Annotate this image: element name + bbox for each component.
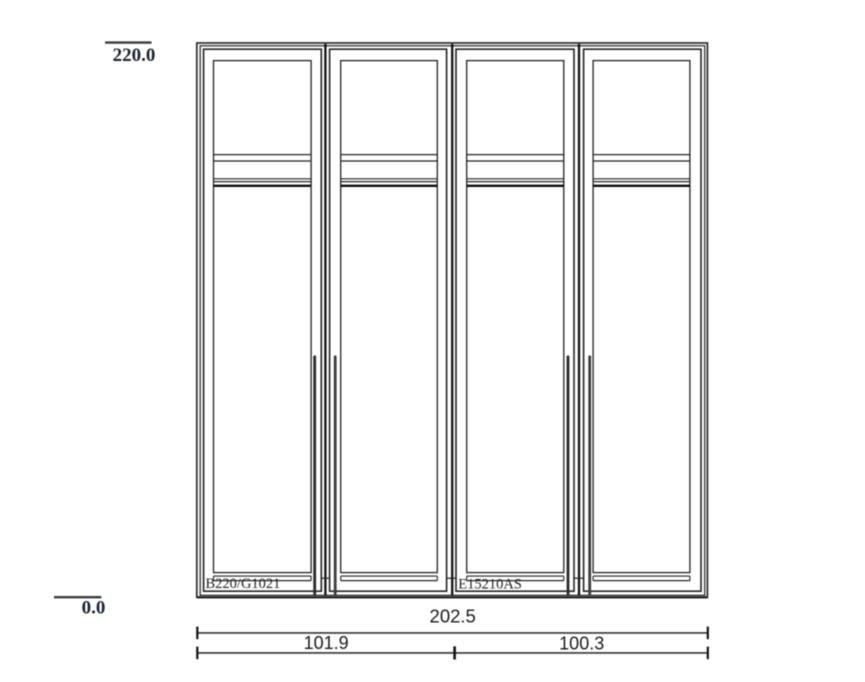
svg-text:220.0: 220.0 bbox=[113, 45, 156, 66]
svg-text:B220/G1021: B220/G1021 bbox=[206, 576, 281, 592]
svg-text:E15210AS: E15210AS bbox=[458, 577, 522, 593]
svg-text:0.0: 0.0 bbox=[82, 598, 106, 619]
svg-text:202.5: 202.5 bbox=[430, 606, 476, 627]
svg-text:101.9: 101.9 bbox=[304, 633, 349, 653]
svg-text:100.3: 100.3 bbox=[559, 634, 604, 654]
